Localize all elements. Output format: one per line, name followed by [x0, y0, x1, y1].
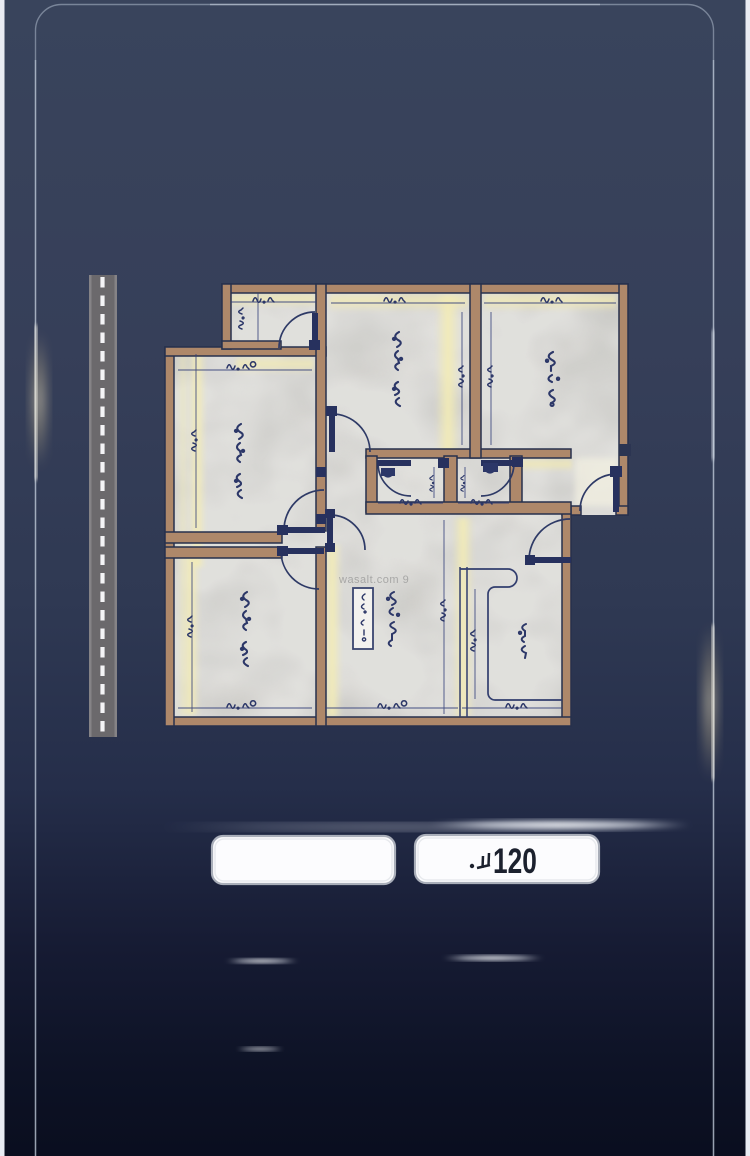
- svg-text:120: 120: [493, 841, 537, 881]
- svg-text:wasalt.com 9: wasalt.com 9: [338, 574, 409, 586]
